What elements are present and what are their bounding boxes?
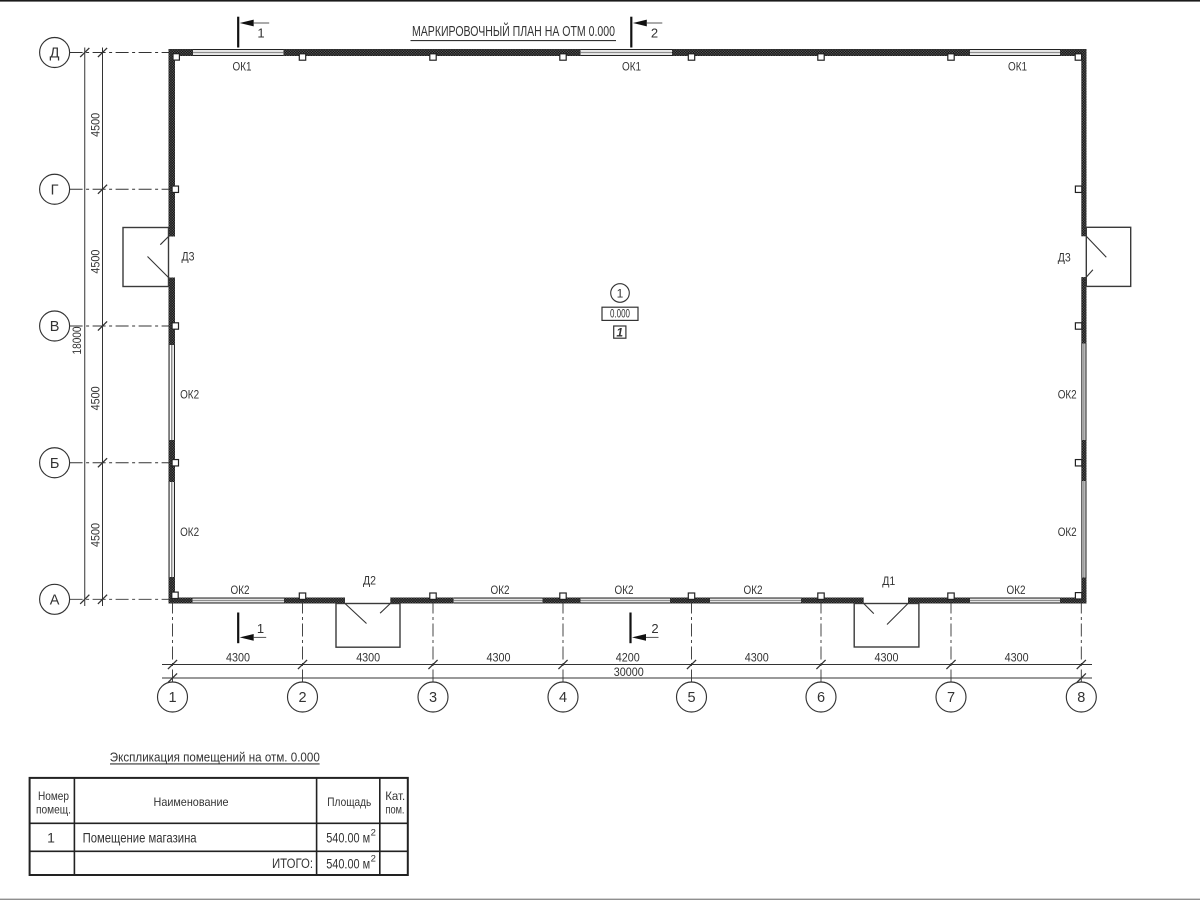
- svg-text:2: 2: [371, 854, 376, 865]
- svg-text:Д2: Д2: [363, 576, 376, 588]
- svg-text:18000: 18000: [70, 326, 84, 354]
- svg-text:2: 2: [298, 690, 306, 706]
- svg-text:4500: 4500: [88, 249, 102, 273]
- svg-text:ОК2: ОК2: [1007, 585, 1026, 597]
- svg-text:1: 1: [616, 326, 623, 340]
- svg-text:Г: Г: [51, 182, 59, 198]
- svg-text:В: В: [50, 319, 60, 335]
- svg-text:ОК2: ОК2: [231, 585, 250, 597]
- svg-text:4300: 4300: [487, 651, 511, 665]
- svg-text:Номер: Номер: [38, 789, 69, 803]
- svg-text:ОК2: ОК2: [744, 585, 763, 597]
- svg-text:4500: 4500: [88, 523, 102, 547]
- svg-text:540.00 м: 540.00 м: [326, 830, 370, 845]
- svg-text:ОК2: ОК2: [180, 527, 199, 539]
- svg-text:МАРКИРОВОЧНЫЙ ПЛАН НА ОТМ 0.00: МАРКИРОВОЧНЫЙ ПЛАН НА ОТМ 0.000: [412, 22, 615, 40]
- svg-text:помещ.: помещ.: [36, 802, 71, 816]
- svg-text:3: 3: [429, 690, 437, 706]
- svg-text:ОК1: ОК1: [233, 62, 252, 74]
- svg-text:4300: 4300: [745, 651, 769, 665]
- svg-text:1: 1: [257, 26, 264, 41]
- svg-text:Д: Д: [50, 46, 60, 62]
- svg-text:5: 5: [687, 690, 695, 706]
- svg-text:ОК2: ОК2: [491, 585, 510, 597]
- svg-text:ОК2: ОК2: [1058, 527, 1077, 539]
- svg-text:Площадь: Площадь: [327, 795, 371, 809]
- svg-text:4300: 4300: [875, 651, 899, 665]
- svg-text:пом.: пом.: [386, 802, 405, 816]
- svg-text:4500: 4500: [88, 386, 102, 410]
- svg-text:4500: 4500: [88, 113, 102, 137]
- svg-text:Кат.: Кат.: [385, 789, 405, 803]
- svg-text:1: 1: [617, 286, 624, 300]
- svg-text:7: 7: [947, 690, 955, 706]
- svg-text:Помещение магазина: Помещение магазина: [83, 829, 197, 845]
- svg-text:ОК2: ОК2: [615, 585, 634, 597]
- svg-text:0.000: 0.000: [610, 307, 630, 321]
- svg-text:ОК2: ОК2: [180, 390, 199, 402]
- svg-text:4300: 4300: [226, 651, 250, 665]
- svg-text:540.00 м: 540.00 м: [326, 856, 370, 871]
- svg-text:ОК1: ОК1: [622, 62, 641, 74]
- svg-text:1: 1: [47, 829, 55, 845]
- svg-text:4: 4: [559, 690, 567, 706]
- svg-text:8: 8: [1077, 690, 1085, 706]
- svg-text:4200: 4200: [616, 651, 640, 665]
- svg-text:4300: 4300: [356, 651, 380, 665]
- svg-text:1: 1: [257, 621, 264, 636]
- svg-text:Д1: Д1: [882, 576, 895, 588]
- svg-text:2: 2: [371, 828, 376, 839]
- svg-text:А: А: [50, 593, 60, 609]
- svg-text:6: 6: [817, 690, 825, 706]
- svg-text:2: 2: [651, 26, 658, 41]
- svg-text:Д3: Д3: [1058, 252, 1071, 264]
- svg-text:ИТОГО:: ИТОГО:: [272, 856, 313, 871]
- svg-text:ОК1: ОК1: [1008, 62, 1027, 74]
- svg-text:Экспликация помещений на отм.: Экспликация помещений на отм. 0.000: [110, 749, 320, 764]
- svg-text:2: 2: [651, 621, 658, 636]
- svg-text:Д3: Д3: [182, 252, 195, 264]
- svg-text:Наименование: Наименование: [154, 795, 229, 809]
- svg-text:ОК2: ОК2: [1058, 390, 1077, 402]
- svg-text:4300: 4300: [1005, 651, 1029, 665]
- svg-text:30000: 30000: [614, 665, 644, 679]
- svg-text:Б: Б: [50, 456, 60, 472]
- svg-text:1: 1: [168, 690, 176, 706]
